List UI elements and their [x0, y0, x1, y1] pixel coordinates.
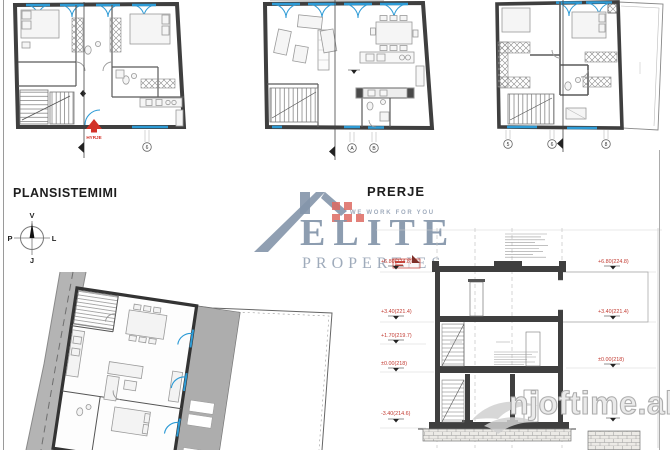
grid-bubbles: 5 6 8	[504, 130, 611, 148]
floor-plan-1: HYRJE 6	[8, 2, 190, 164]
compass-east: L	[52, 234, 57, 243]
elevation-label: +6.80(224.8)	[598, 259, 629, 265]
staircase	[270, 88, 318, 122]
elevation-label: +1.70(219.7)	[381, 333, 412, 339]
compass-south: J	[30, 256, 34, 264]
elevation-label: +3.40(221.4)	[381, 309, 412, 315]
north-needle-icon	[30, 223, 35, 239]
staircase	[508, 94, 554, 124]
floor-plan-3: 5 6 8	[490, 0, 670, 156]
compass-west: P	[7, 234, 12, 243]
svg-text:6: 6	[146, 145, 149, 151]
elevation-label: +3.40(221.4)	[598, 309, 629, 315]
site-plan	[16, 264, 352, 450]
floor-plan-2: A B	[256, 0, 452, 166]
building-footprint	[52, 288, 240, 450]
compass-rose: V J P L	[6, 208, 58, 264]
plan-title: PLANSISTEMIMI	[13, 186, 117, 200]
annotation-block-top	[505, 234, 548, 257]
entrance-label: HYRJE	[86, 135, 101, 140]
svg-text:6: 6	[551, 142, 554, 148]
staircase	[74, 290, 119, 330]
page-border-left	[3, 0, 4, 450]
svg-text:8: 8	[605, 142, 608, 148]
elevation-label: ±0.00(218)	[598, 357, 624, 363]
annotation-block-mid	[494, 352, 538, 365]
grid-bubbles: A B	[348, 132, 379, 152]
elevation-label: +6.80(224.8)	[381, 259, 412, 265]
page-border-right	[659, 150, 660, 450]
shaft	[608, 4, 617, 13]
staircase	[20, 90, 74, 124]
svg-text:5: 5	[507, 142, 510, 148]
grid-bubble: 6	[143, 130, 152, 151]
architectural-sheet: HYRJE 6	[0, 0, 670, 450]
compass-north: V	[29, 211, 34, 220]
corner-watermark: njoftime.al	[509, 385, 670, 422]
elevation-label: -3.40(214.6)	[381, 411, 411, 417]
elevation-label: ±0.00(218)	[381, 361, 407, 367]
elevation-markers-left: +6.80(224.8) +3.40(221.4) +1.70(219.7) ±…	[381, 259, 412, 423]
terrace-outline	[618, 2, 663, 130]
